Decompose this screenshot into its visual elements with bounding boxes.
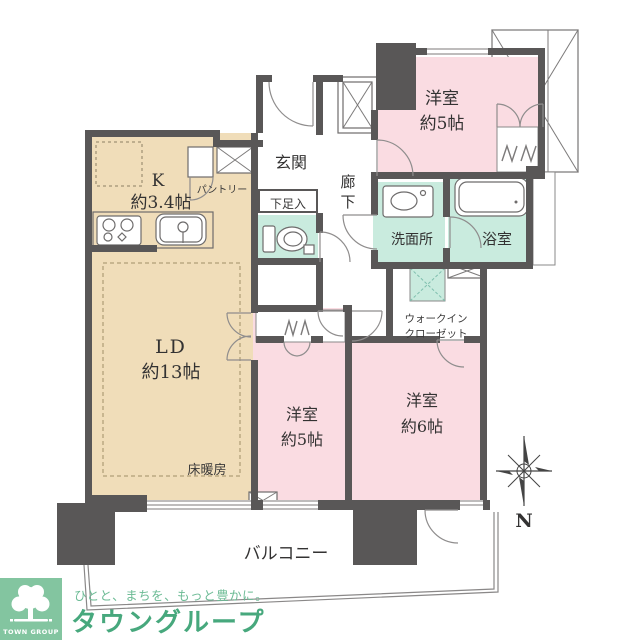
window-ld: [147, 500, 251, 510]
washroom-door: [343, 215, 377, 249]
label-washroom: 洗面所: [391, 232, 433, 248]
label-bedroom-center: 洋室: [286, 405, 318, 424]
closet-north: [497, 127, 538, 172]
label-entrance: 玄関: [275, 153, 307, 172]
window-bedroom-east: [460, 500, 483, 510]
washroom-storage-x: [410, 268, 445, 301]
compass-n-label: N: [515, 510, 532, 532]
label-bathroom: 浴室: [482, 230, 512, 248]
entry-door: [269, 82, 313, 126]
compass: N: [496, 436, 552, 532]
label-hallway-2: 下: [340, 193, 355, 211]
label-ld: LD: [155, 336, 187, 358]
footer: TOWN GROUP ひとと、まちを、もっと豊かに。 タウングループ: [0, 578, 268, 640]
label-pantry: パントリー: [197, 184, 248, 196]
label-bedroom-center-size: 約5帖: [281, 430, 323, 449]
label-bedroom-east-size: 約6帖: [401, 417, 443, 436]
label-bedroom-north: 洋室: [425, 89, 459, 109]
kitchen-sink-icon: [156, 214, 206, 245]
washbasin-icon: [383, 186, 433, 217]
label-kitchen: K: [152, 171, 165, 191]
label-balcony: バルコニー: [244, 544, 329, 564]
label-shoe-cabinet: 下足入: [270, 197, 306, 211]
duct-x-box: [217, 147, 253, 173]
label-kitchen-size: 約3.4帖: [130, 193, 191, 213]
pantry-box: [188, 147, 213, 177]
label-hallway-1: 廊: [340, 173, 355, 191]
floorplan-page: K 約3.4帖 パントリー LD 約13帖 床暖房 玄関 下足入 廊 下 洗面所…: [0, 0, 640, 640]
toilet-door: [320, 232, 350, 262]
duct-right: [533, 172, 555, 265]
label-floor-heating: 床暖房: [187, 462, 226, 478]
balcony-door: [425, 510, 458, 543]
logo-label: TOWN GROUP: [3, 628, 59, 636]
window-bedroom-center: [263, 500, 318, 510]
footer-slogan: ひとと、まちを、もっと豊かに。: [74, 588, 268, 603]
label-ld-size: 約13帖: [142, 362, 201, 383]
label-bedroom-north-size: 約5帖: [420, 114, 465, 134]
footer-brand: タウングループ: [71, 608, 265, 638]
label-bedroom-east: 洋室: [406, 391, 438, 410]
bathtub-icon: [455, 178, 528, 216]
window-bedroom-north: [427, 48, 488, 55]
label-wic-2: クローゼット: [405, 328, 468, 340]
label-wic-1: ウォークイン: [405, 313, 468, 325]
stove-icon: [97, 216, 141, 245]
floorplan-drawing: K 約3.4帖 パントリー LD 約13帖 床暖房 玄関 下足入 廊 下 洗面所…: [0, 0, 640, 640]
